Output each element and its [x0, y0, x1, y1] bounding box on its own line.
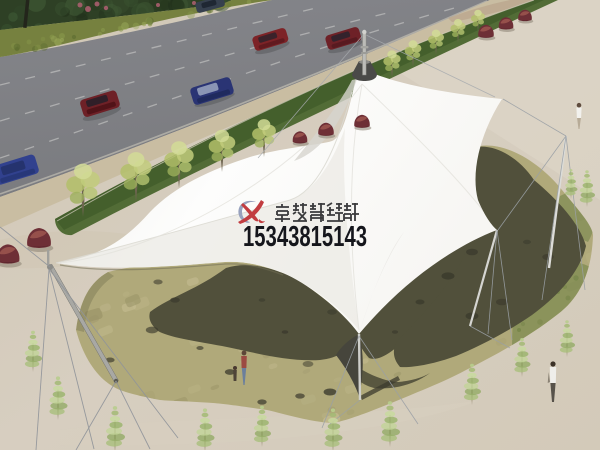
- svg-text:15343815143: 15343815143: [243, 221, 367, 253]
